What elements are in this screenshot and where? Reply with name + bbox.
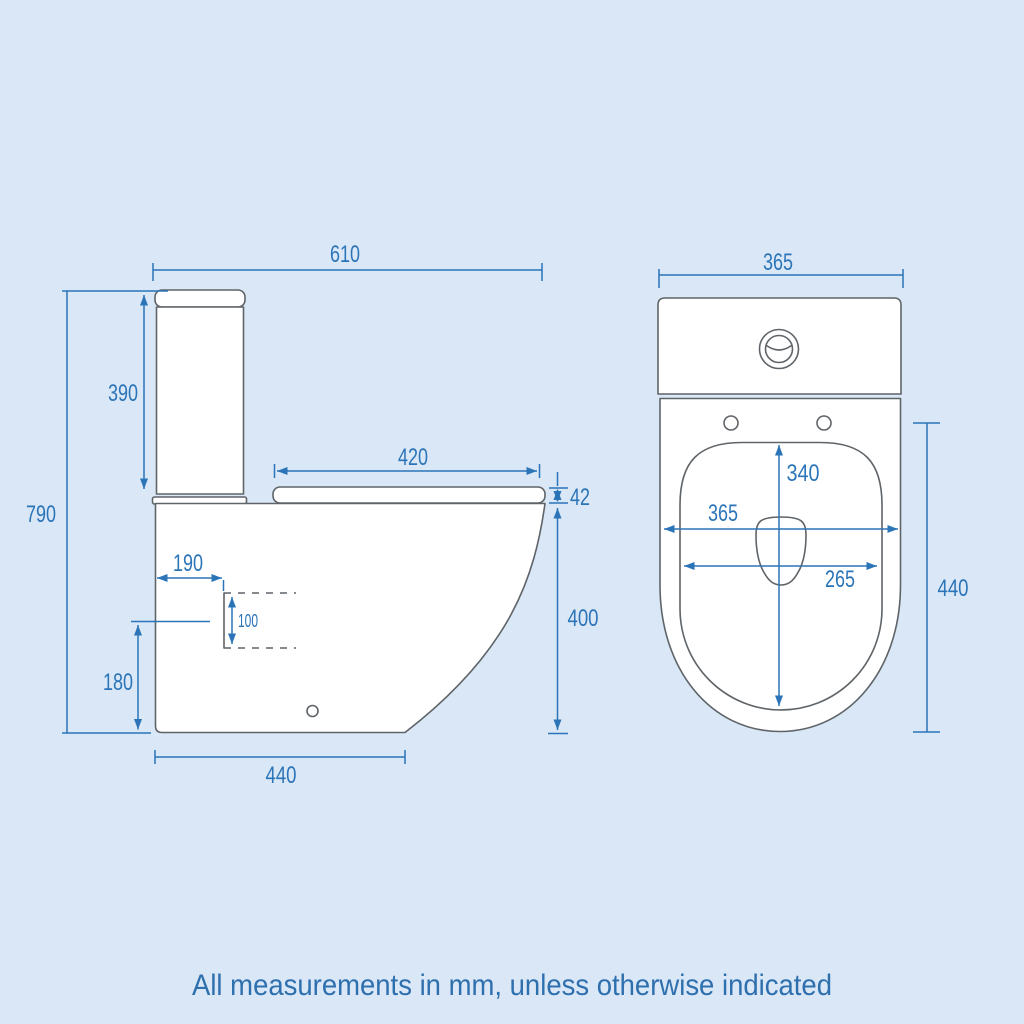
side-cistern-tank	[157, 307, 244, 494]
dim-side-overall-height-line	[62, 291, 168, 733]
dim-side-outlet-height-label: 180	[103, 669, 133, 696]
toilet-dimension-diagram: 610 790 390 420 42 400 190 100 180 440	[0, 0, 1024, 1024]
hinge-hole-right	[817, 416, 831, 430]
dim-side-seat-thickness-label: 42	[570, 484, 590, 511]
dim-top-bowl-width-label: 365	[708, 500, 738, 527]
measurements-note: All measurements in mm, unless otherwise…	[192, 969, 832, 1002]
dim-side-overall-width-label: 610	[330, 241, 360, 268]
top-view: 365 340 365 265 440	[658, 249, 969, 732]
dim-top-seat-depth-label: 340	[787, 460, 820, 487]
dimension-diagram-page: 610 790 390 420 42 400 190 100 180 440	[0, 0, 1024, 1024]
dim-side-overall-height-label: 790	[26, 501, 56, 528]
side-drain-hole	[307, 706, 318, 717]
dim-side-outlet-setback-label: 190	[173, 550, 203, 577]
side-view: 610 790 390 420 42 400 190 100 180 440	[26, 241, 599, 789]
dim-side-seat-thickness-ticks	[549, 472, 568, 503]
dim-side-rim-height-label: 400	[568, 605, 599, 632]
side-seat	[273, 487, 545, 503]
dim-top-seat-width-label: 265	[825, 566, 855, 593]
hinge-hole-left	[724, 416, 738, 430]
dim-side-base-depth-label: 440	[266, 762, 297, 789]
dim-top-bowl-depth-label: 440	[938, 575, 969, 602]
side-cistern-lid	[155, 290, 245, 307]
dim-side-seat-length-label: 420	[398, 444, 428, 471]
dim-top-cistern-width-label: 365	[763, 249, 793, 276]
dim-top-bowl-depth-line	[913, 423, 940, 732]
side-bowl-body	[156, 504, 546, 733]
dim-side-outlet-size-label: 100	[238, 611, 258, 631]
dim-side-cistern-height-label: 390	[108, 380, 138, 407]
flush-button-inner	[766, 336, 793, 363]
